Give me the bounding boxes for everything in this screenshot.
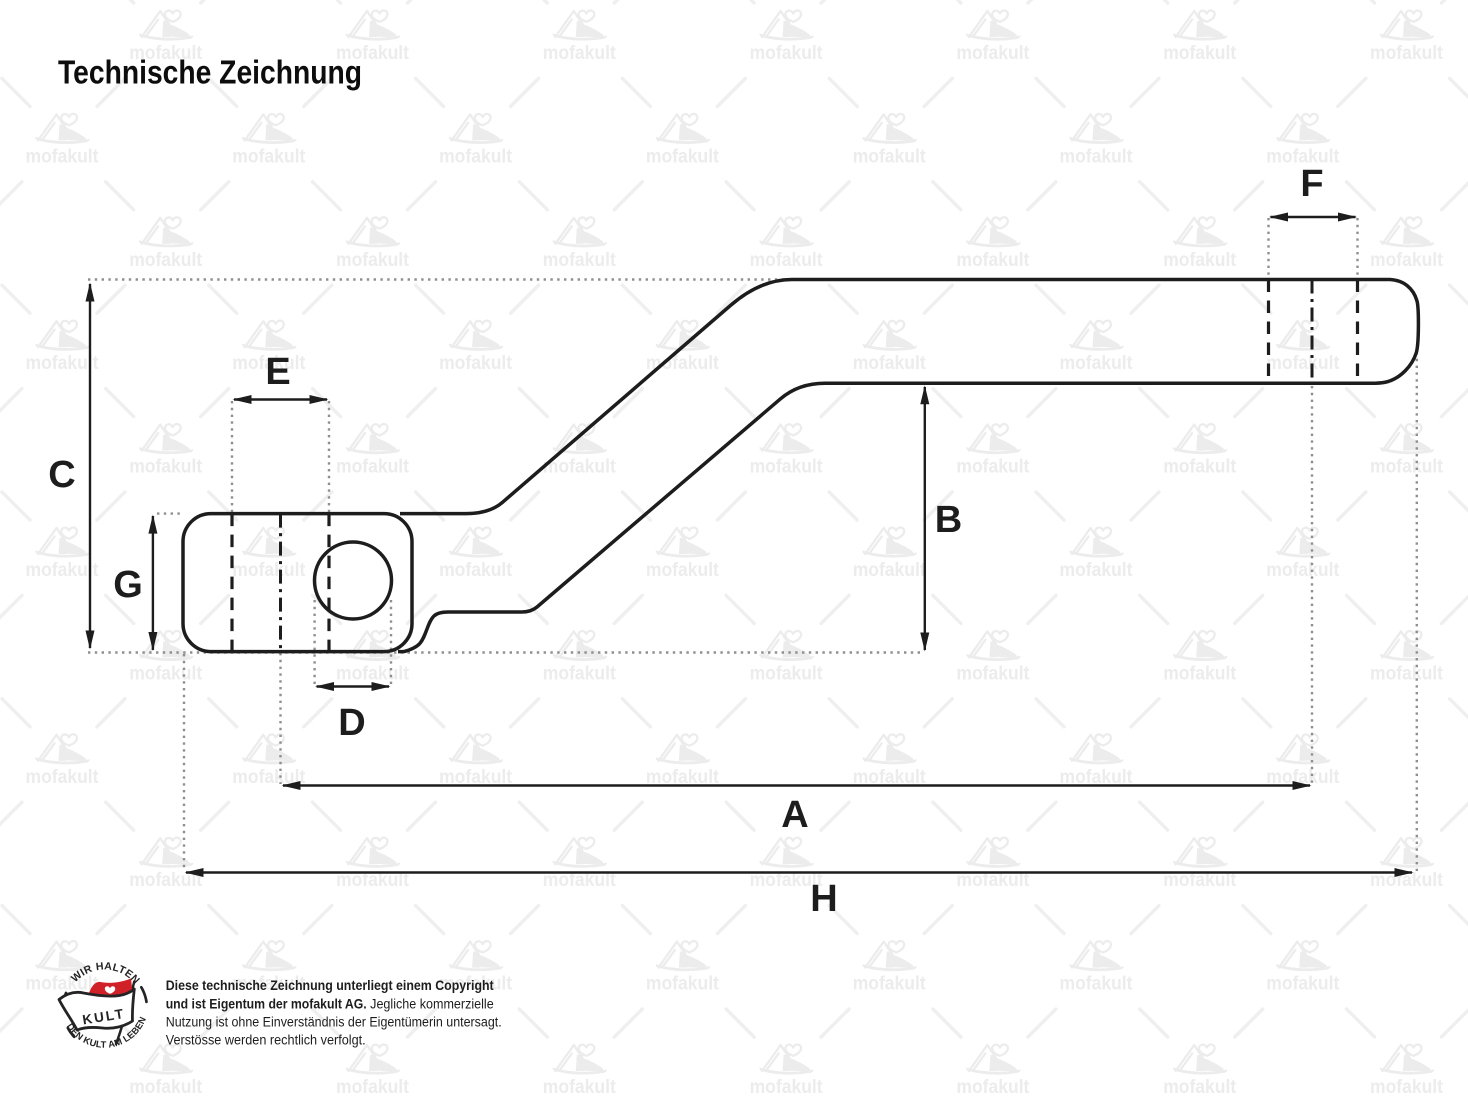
svg-text:A: A xyxy=(781,794,808,836)
svg-text:B: B xyxy=(935,499,962,541)
svg-text:H: H xyxy=(810,878,837,920)
svg-text:C: C xyxy=(48,454,75,496)
svg-text:E: E xyxy=(265,351,290,393)
svg-text:und ist Eigentum der mofakult: und ist Eigentum der mofakult AG. Jeglic… xyxy=(166,996,494,1011)
svg-text:G: G xyxy=(113,564,143,606)
svg-text:Nutzung ist ohne Einverständni: Nutzung ist ohne Einverständnis der Eige… xyxy=(166,1014,502,1029)
svg-text:F: F xyxy=(1300,163,1323,205)
svg-text:Technische Zeichnung: Technische Zeichnung xyxy=(58,54,362,91)
svg-text:D: D xyxy=(338,702,365,744)
svg-text:Verstösse werden rechtlich ver: Verstösse werden rechtlich verfolgt. xyxy=(166,1033,366,1048)
svg-text:Diese technische Zeichnung unt: Diese technische Zeichnung unterliegt ei… xyxy=(166,978,494,993)
